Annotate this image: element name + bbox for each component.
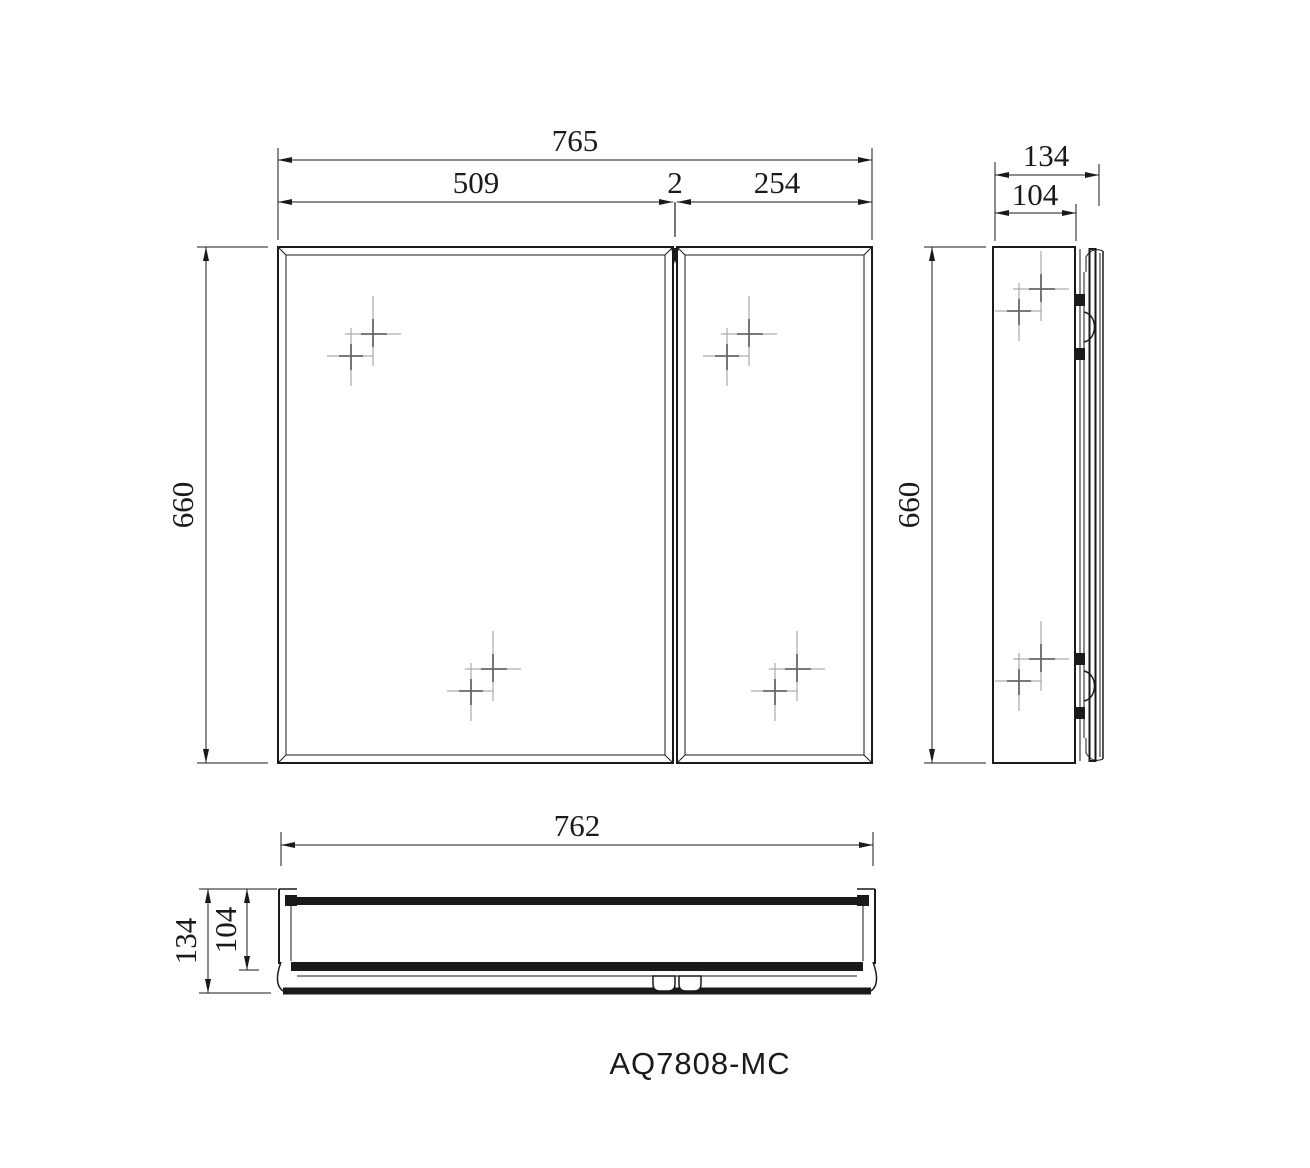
front-right-door xyxy=(677,247,872,763)
dim-text-bottom-total-depth: 134 xyxy=(168,917,203,964)
dim-text-side-body-depth: 104 xyxy=(1012,177,1059,212)
mirror-glint-icon xyxy=(447,631,521,721)
mirror-glint-icon xyxy=(751,631,825,721)
side-view: 134 104 660 xyxy=(891,138,1103,763)
mirror-glint-icon xyxy=(703,296,777,386)
hinge-top xyxy=(1076,294,1095,360)
dim-bottom-width: 762 xyxy=(281,808,873,866)
mirror-glint-icon xyxy=(995,621,1069,711)
dim-front-door-widths: 509 2 254 xyxy=(278,165,872,264)
dim-text-left-door-width: 509 xyxy=(453,165,500,200)
side-cabinet-body xyxy=(993,247,1075,763)
dim-text-bottom-width: 762 xyxy=(554,808,601,843)
dim-text-side-height: 660 xyxy=(891,482,926,529)
dim-text-right-door-width: 254 xyxy=(754,165,801,200)
mirror-glint-icon xyxy=(327,296,401,386)
drawing-canvas: 765 509 2 254 660 xyxy=(0,0,1310,1168)
bottom-view: 762 134 104 xyxy=(168,808,877,993)
dim-text-door-gap: 2 xyxy=(667,165,683,200)
front-view: 765 509 2 254 660 xyxy=(165,123,872,763)
hinge-bottom xyxy=(1076,653,1095,719)
bottom-cabinet-section xyxy=(279,889,875,971)
mirror-glint-icon xyxy=(995,251,1069,341)
dim-bottom-body-depth: 104 xyxy=(208,889,259,970)
dim-text-front-total-width: 765 xyxy=(552,123,599,158)
dim-text-side-total-depth: 134 xyxy=(1023,138,1070,173)
model-number-label: AQ7808-MC xyxy=(609,1046,790,1081)
dim-text-front-height: 660 xyxy=(165,482,200,529)
dim-side-height: 660 xyxy=(891,247,986,763)
dim-side-body-depth: 104 xyxy=(995,177,1076,241)
dim-text-bottom-body-depth: 104 xyxy=(208,906,243,953)
technical-drawing: 765 509 2 254 660 xyxy=(0,0,1310,1168)
side-door-profile xyxy=(1086,249,1103,761)
dim-front-height: 660 xyxy=(165,247,268,763)
front-left-door xyxy=(278,247,673,763)
